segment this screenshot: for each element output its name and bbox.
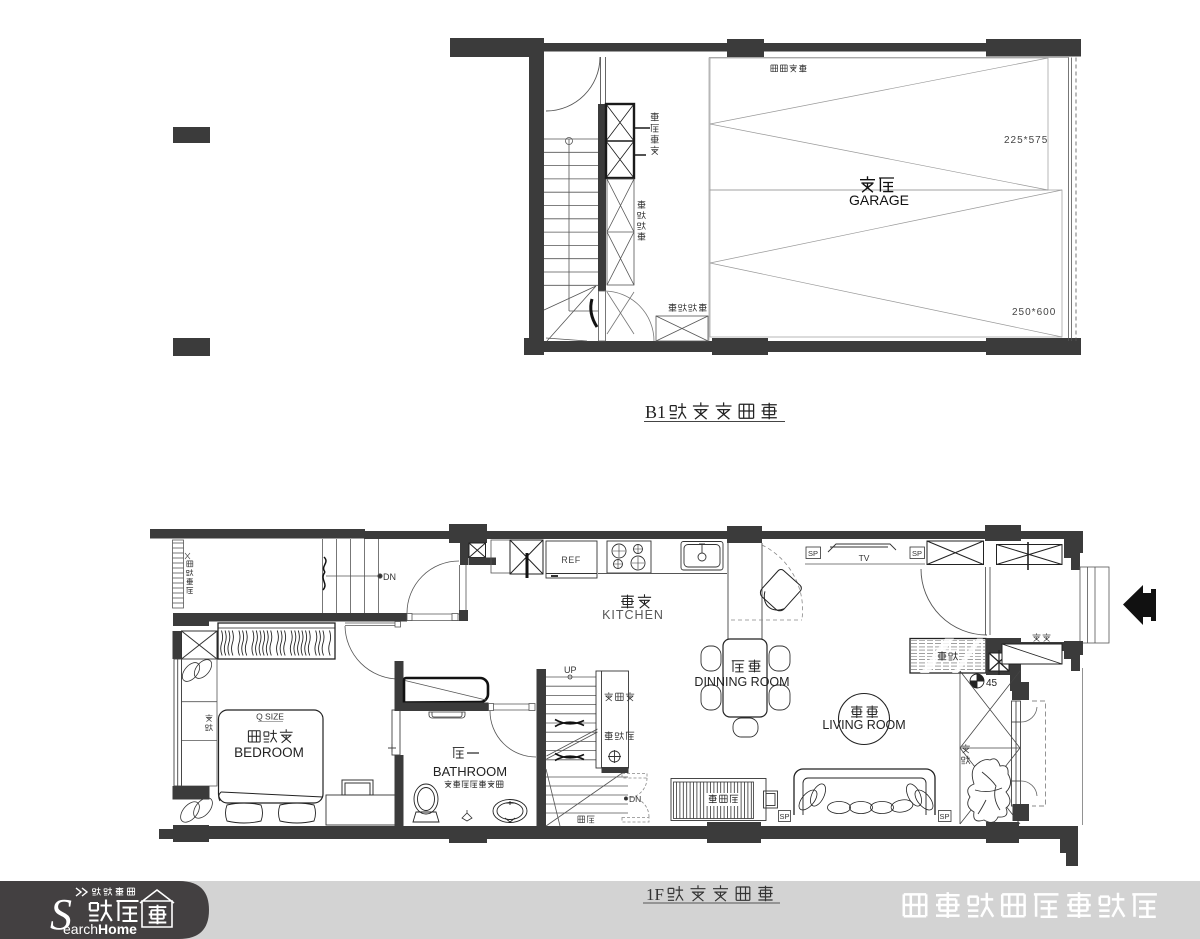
svg-text:UP: UP <box>564 665 577 675</box>
svg-text:LIVING ROOM: LIVING ROOM <box>822 718 905 732</box>
svg-text:SP: SP <box>939 812 949 821</box>
svg-text:KITCHEN: KITCHEN <box>602 608 664 622</box>
svg-text:SP: SP <box>912 549 922 558</box>
svg-text:B1: B1 <box>645 402 666 422</box>
svg-text:225*575: 225*575 <box>1004 135 1048 146</box>
svg-text:1F: 1F <box>646 885 664 904</box>
svg-text:Q SIZE: Q SIZE <box>256 712 284 722</box>
svg-text:earchHome: earchHome <box>63 921 137 937</box>
svg-text:SP: SP <box>808 549 818 558</box>
svg-text:SP: SP <box>779 812 789 821</box>
svg-text:45: 45 <box>986 678 998 689</box>
svg-text:DN: DN <box>629 794 641 804</box>
svg-text:DN: DN <box>383 572 396 582</box>
svg-text:REF: REF <box>561 555 581 565</box>
svg-text:250*600: 250*600 <box>1012 307 1056 318</box>
svg-text:DINNING ROOM: DINNING ROOM <box>694 675 789 689</box>
svg-text:GARAGE: GARAGE <box>849 192 909 208</box>
svg-text:BATHROOM: BATHROOM <box>433 764 507 779</box>
svg-text:BEDROOM: BEDROOM <box>234 745 304 760</box>
svg-text:TV: TV <box>859 553 870 563</box>
